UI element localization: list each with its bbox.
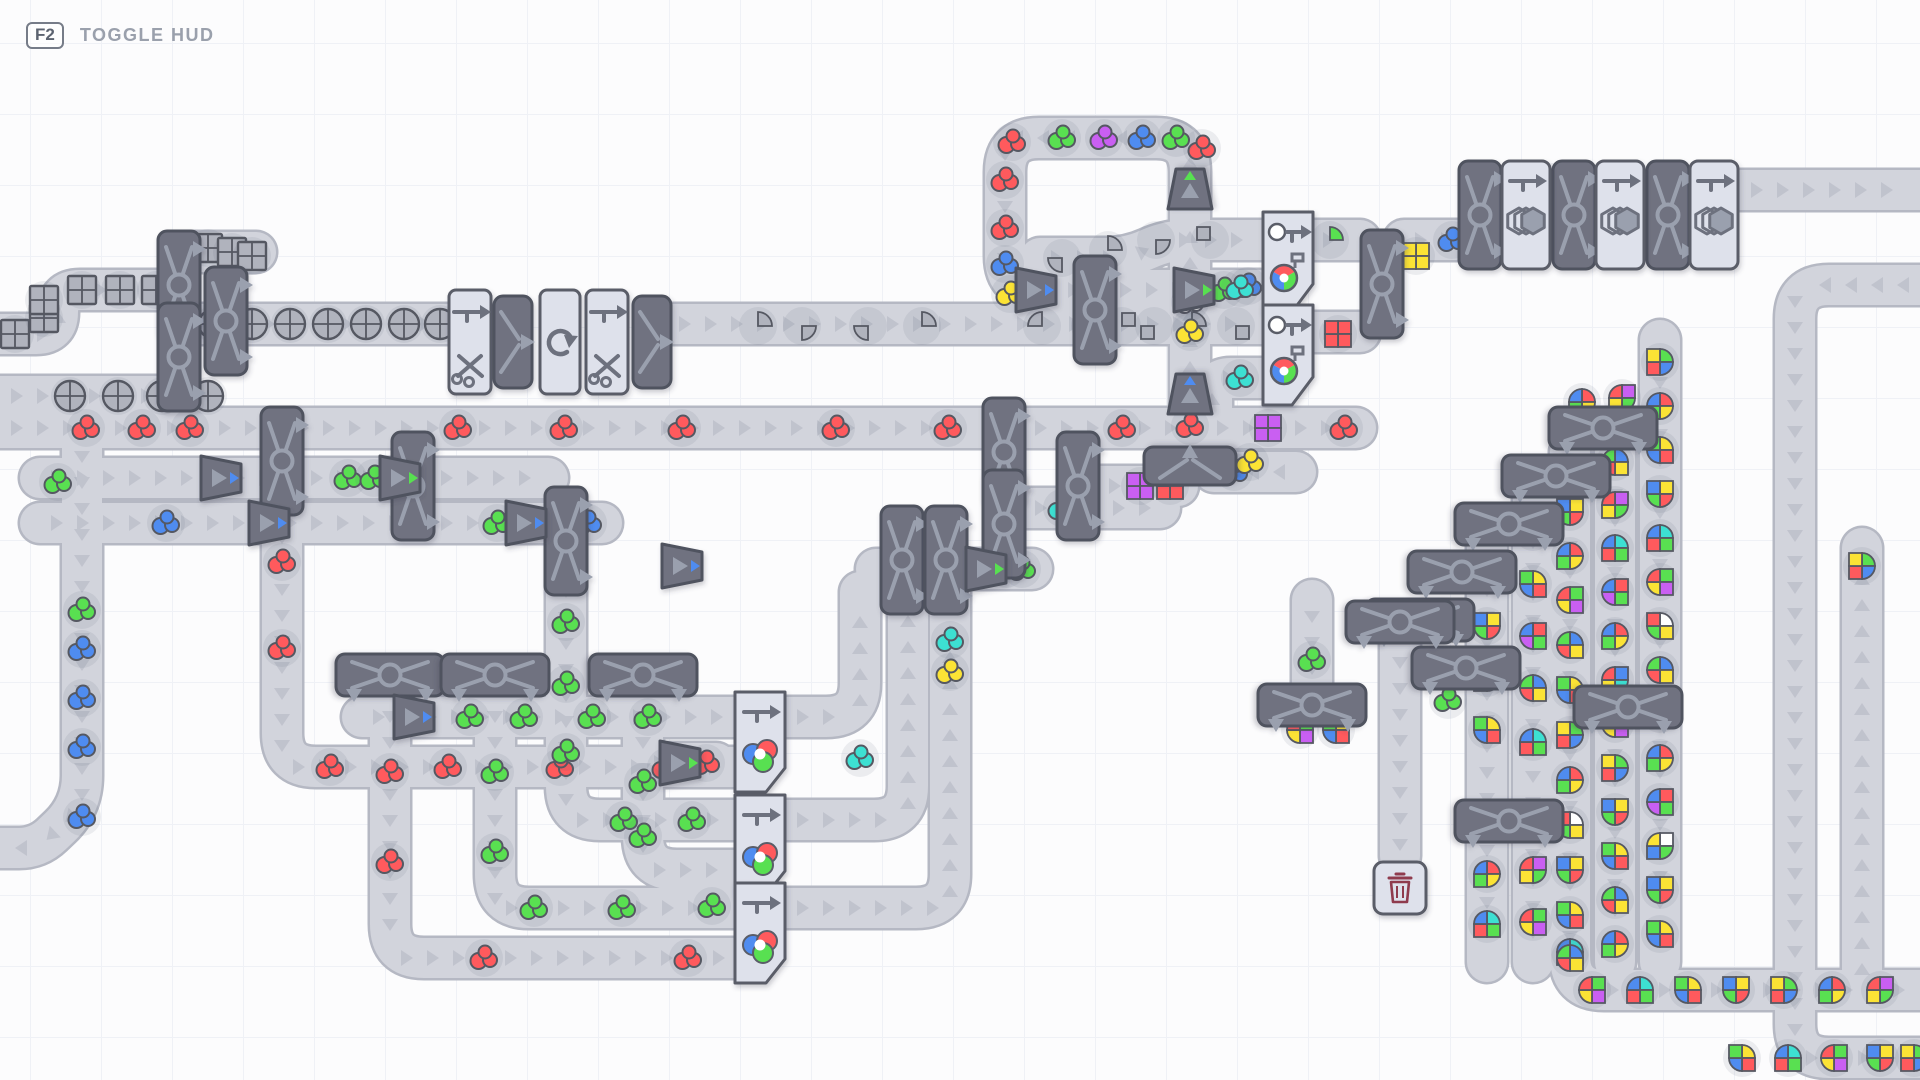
item-quarter-circle bbox=[739, 307, 777, 345]
item-color-r bbox=[171, 409, 209, 447]
item-color-b bbox=[1123, 119, 1161, 157]
machine-balancer[interactable] bbox=[336, 654, 444, 702]
item-color-r bbox=[669, 939, 707, 977]
item-color-r bbox=[1325, 409, 1363, 447]
factory-canvas[interactable] bbox=[0, 0, 1920, 1080]
item-color-g bbox=[505, 698, 543, 736]
item-color-c bbox=[1221, 269, 1259, 307]
item-color-g bbox=[476, 833, 514, 871]
item-painted-shape bbox=[1573, 971, 1611, 1009]
item-color-r bbox=[1103, 409, 1141, 447]
machine-filter[interactable] bbox=[1016, 268, 1056, 312]
machine-balancer[interactable] bbox=[589, 654, 697, 702]
item-quarter-circle bbox=[849, 307, 887, 345]
item-quarter-square bbox=[1135, 307, 1173, 345]
machine-balancer[interactable] bbox=[1412, 647, 1520, 695]
item-painted-shape bbox=[1514, 903, 1552, 941]
item-painted-shape bbox=[1249, 409, 1287, 447]
item-color-p bbox=[1085, 119, 1123, 157]
machine-balancer[interactable] bbox=[1258, 684, 1366, 732]
item-circle bbox=[347, 305, 385, 343]
item-painted-shape bbox=[1641, 475, 1679, 513]
item-painted-shape bbox=[1861, 1039, 1899, 1077]
machine-trash[interactable] bbox=[1374, 862, 1426, 914]
item-color-r bbox=[429, 748, 467, 786]
machine-filter[interactable] bbox=[966, 547, 1006, 591]
hud-toggle-hint: F2 TOGGLE HUD bbox=[26, 22, 215, 49]
machine-balancer[interactable] bbox=[1549, 407, 1657, 455]
item-color-r bbox=[263, 543, 301, 581]
item-color-b bbox=[63, 679, 101, 717]
item-painted-shape bbox=[1813, 971, 1851, 1009]
item-color-g bbox=[515, 889, 553, 927]
game-viewport[interactable]: F2 TOGGLE HUD bbox=[0, 0, 1920, 1080]
item-painted-shape bbox=[1596, 529, 1634, 567]
machine-balancer[interactable] bbox=[1455, 503, 1563, 551]
machine-balancer[interactable] bbox=[1553, 161, 1601, 269]
machine-cutter[interactable] bbox=[449, 290, 491, 394]
machine-balancer[interactable] bbox=[261, 407, 309, 515]
item-painted-shape bbox=[1669, 971, 1707, 1009]
item-square bbox=[101, 271, 139, 309]
machine-filter[interactable] bbox=[380, 456, 420, 500]
item-painted-shape bbox=[1641, 871, 1679, 909]
item-painted-shape bbox=[1319, 315, 1357, 353]
item-color-g bbox=[673, 801, 711, 839]
machine-balancer[interactable] bbox=[1574, 686, 1682, 734]
machine-balancer[interactable] bbox=[1361, 230, 1409, 338]
machine-filter[interactable] bbox=[506, 501, 546, 545]
item-color-r bbox=[929, 409, 967, 447]
machine-balancer[interactable] bbox=[1455, 800, 1563, 848]
item-color-r bbox=[123, 409, 161, 447]
item-color-r bbox=[986, 161, 1024, 199]
item-painted-shape bbox=[1596, 749, 1634, 787]
item-color-r bbox=[311, 748, 349, 786]
item-painted-shape bbox=[1641, 343, 1679, 381]
item-color-g bbox=[1157, 119, 1195, 157]
hud-key-action: TOGGLE HUD bbox=[80, 25, 215, 46]
machine-merger[interactable] bbox=[633, 296, 674, 388]
item-circle bbox=[385, 305, 423, 343]
item-painted-shape bbox=[1551, 761, 1589, 799]
item-painted-shape bbox=[1311, 221, 1349, 259]
item-color-g bbox=[476, 753, 514, 791]
machine-stacker[interactable] bbox=[1690, 161, 1738, 269]
item-color-g bbox=[451, 698, 489, 736]
item-painted-shape bbox=[1514, 723, 1552, 761]
item-color-r bbox=[545, 409, 583, 447]
item-quarter-circle bbox=[1137, 221, 1175, 259]
item-square bbox=[63, 271, 101, 309]
machine-filter[interactable] bbox=[1174, 268, 1214, 312]
item-painted-shape bbox=[1596, 573, 1634, 611]
machine-filter[interactable] bbox=[662, 544, 702, 588]
item-painted-shape bbox=[1468, 855, 1506, 893]
machine-balancer[interactable] bbox=[545, 487, 593, 595]
item-color-g bbox=[63, 591, 101, 629]
machine-balancer[interactable] bbox=[881, 506, 929, 614]
machine-rotator[interactable] bbox=[540, 290, 580, 394]
item-color-g bbox=[1293, 641, 1331, 679]
item-color-r bbox=[465, 939, 503, 977]
item-painted-shape bbox=[1723, 1039, 1761, 1077]
item-painted-shape bbox=[1815, 1039, 1853, 1077]
item-color-r bbox=[67, 409, 105, 447]
machine-balancer[interactable] bbox=[441, 654, 549, 702]
machine-filter[interactable] bbox=[1168, 374, 1212, 414]
machine-mixer[interactable] bbox=[735, 795, 785, 895]
item-painted-shape bbox=[1717, 971, 1755, 1009]
machine-merger[interactable] bbox=[1144, 444, 1236, 485]
machine-balancer[interactable] bbox=[1647, 161, 1695, 269]
item-color-g bbox=[547, 603, 585, 641]
item-color-r bbox=[371, 843, 409, 881]
machine-balancer[interactable] bbox=[1408, 551, 1516, 599]
item-painted-shape bbox=[1551, 626, 1589, 664]
item-color-g bbox=[624, 817, 662, 855]
machine-filter[interactable] bbox=[660, 741, 700, 785]
machine-stacker[interactable] bbox=[1596, 161, 1644, 269]
item-color-r bbox=[371, 753, 409, 791]
item-painted-shape bbox=[1641, 827, 1679, 865]
item-quarter-circle bbox=[903, 307, 941, 345]
item-painted-shape bbox=[1641, 915, 1679, 953]
machine-balancer[interactable] bbox=[1074, 256, 1122, 364]
item-color-g bbox=[547, 733, 585, 771]
machine-balancer[interactable] bbox=[1057, 432, 1105, 540]
machine-balancer[interactable] bbox=[1346, 601, 1454, 649]
item-quarter-circle bbox=[1023, 307, 1061, 345]
item-circle bbox=[309, 305, 347, 343]
item-color-c bbox=[841, 739, 879, 777]
item-color-b bbox=[63, 728, 101, 766]
item-color-r bbox=[817, 409, 855, 447]
machine-filter[interactable] bbox=[394, 695, 434, 739]
item-color-g bbox=[693, 887, 731, 925]
machine-balancer[interactable] bbox=[205, 267, 253, 375]
item-color-c bbox=[1221, 359, 1259, 397]
machine-stacker[interactable] bbox=[1502, 161, 1550, 269]
item-color-c bbox=[931, 621, 969, 659]
item-painted-shape bbox=[1596, 925, 1634, 963]
item-color-r bbox=[439, 409, 477, 447]
item-painted-shape bbox=[1596, 837, 1634, 875]
item-quarter-circle bbox=[783, 307, 821, 345]
item-color-b bbox=[147, 504, 185, 542]
item-painted-shape bbox=[1514, 617, 1552, 655]
item-painted-shape bbox=[1551, 851, 1589, 889]
item-painted-shape bbox=[1621, 971, 1659, 1009]
machine-filter[interactable] bbox=[1168, 169, 1212, 209]
item-painted-shape bbox=[1468, 711, 1506, 749]
machine-merger[interactable] bbox=[494, 296, 535, 388]
item-painted-shape bbox=[1514, 565, 1552, 603]
machine-cutter[interactable] bbox=[586, 290, 628, 394]
machine-filter[interactable] bbox=[201, 456, 241, 500]
item-painted-shape bbox=[1641, 519, 1679, 557]
item-color-g bbox=[573, 698, 611, 736]
machine-balancer[interactable] bbox=[1459, 161, 1507, 269]
item-color-b bbox=[63, 630, 101, 668]
item-painted-shape bbox=[1551, 896, 1589, 934]
item-painted-shape bbox=[1641, 783, 1679, 821]
machine-balancer[interactable] bbox=[1502, 455, 1610, 503]
item-quarter-square bbox=[1191, 221, 1229, 259]
item-painted-shape bbox=[1514, 851, 1552, 889]
machine-mixer[interactable] bbox=[735, 692, 785, 792]
machine-mixer[interactable] bbox=[735, 883, 785, 983]
item-color-g bbox=[603, 889, 641, 927]
item-painted-shape bbox=[1765, 971, 1803, 1009]
item-painted-shape bbox=[1551, 581, 1589, 619]
machine-filter[interactable] bbox=[249, 501, 289, 545]
item-color-r bbox=[663, 409, 701, 447]
item-quarter-square bbox=[1217, 307, 1255, 345]
item-color-g bbox=[547, 665, 585, 703]
item-circle bbox=[99, 377, 137, 415]
item-color-r bbox=[263, 629, 301, 667]
item-painted-shape bbox=[1596, 793, 1634, 831]
item-color-b bbox=[63, 798, 101, 836]
hud-key-badge: F2 bbox=[26, 22, 64, 49]
item-color-r bbox=[993, 123, 1031, 161]
item-color-g bbox=[629, 698, 667, 736]
item-painted-shape bbox=[1641, 651, 1679, 689]
item-painted-shape bbox=[1861, 971, 1899, 1009]
item-painted-shape bbox=[1641, 563, 1679, 601]
item-square bbox=[25, 281, 63, 319]
item-painted-shape bbox=[1596, 881, 1634, 919]
machine-balancer[interactable] bbox=[158, 303, 206, 411]
item-painted-shape bbox=[1843, 547, 1881, 585]
item-painted-shape bbox=[1641, 739, 1679, 777]
item-color-g bbox=[624, 763, 662, 801]
item-painted-shape bbox=[1769, 1039, 1807, 1077]
item-painted-shape bbox=[1596, 617, 1634, 655]
item-painted-shape bbox=[1551, 939, 1589, 977]
item-color-g bbox=[39, 463, 77, 501]
item-painted-shape bbox=[1641, 607, 1679, 645]
item-color-r bbox=[986, 209, 1024, 247]
item-color-g bbox=[1043, 119, 1081, 157]
item-painted-shape bbox=[1468, 905, 1506, 943]
item-circle bbox=[271, 305, 309, 343]
